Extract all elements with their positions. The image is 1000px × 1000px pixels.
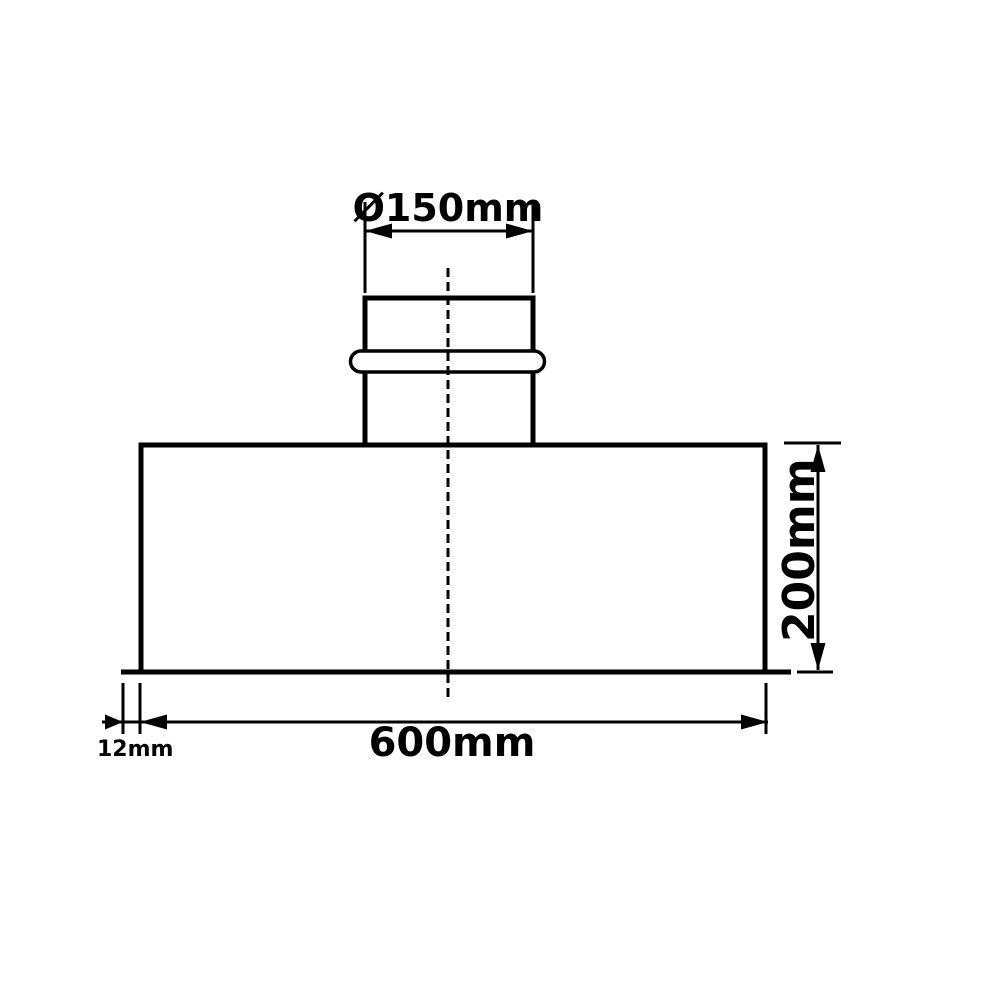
arrowhead-down-icon: [811, 643, 826, 670]
body-width-label: 600mm: [332, 722, 572, 764]
technical-drawing: [0, 0, 1000, 1000]
arrowhead-left-icon: [140, 715, 167, 730]
arrowhead-right-icon: [741, 715, 768, 730]
technical-drawing-canvas: Ø150mm 200mm 600mm 12mm: [0, 0, 1000, 1000]
body-outline: [121, 445, 791, 672]
flange-lip-label: 12mm: [97, 738, 171, 762]
body-box: [141, 445, 765, 671]
body-height-label: 200mm: [777, 472, 823, 642]
spigot-diameter-label: Ø150mm: [330, 188, 566, 228]
arrowhead-right-icon: [105, 715, 123, 730]
